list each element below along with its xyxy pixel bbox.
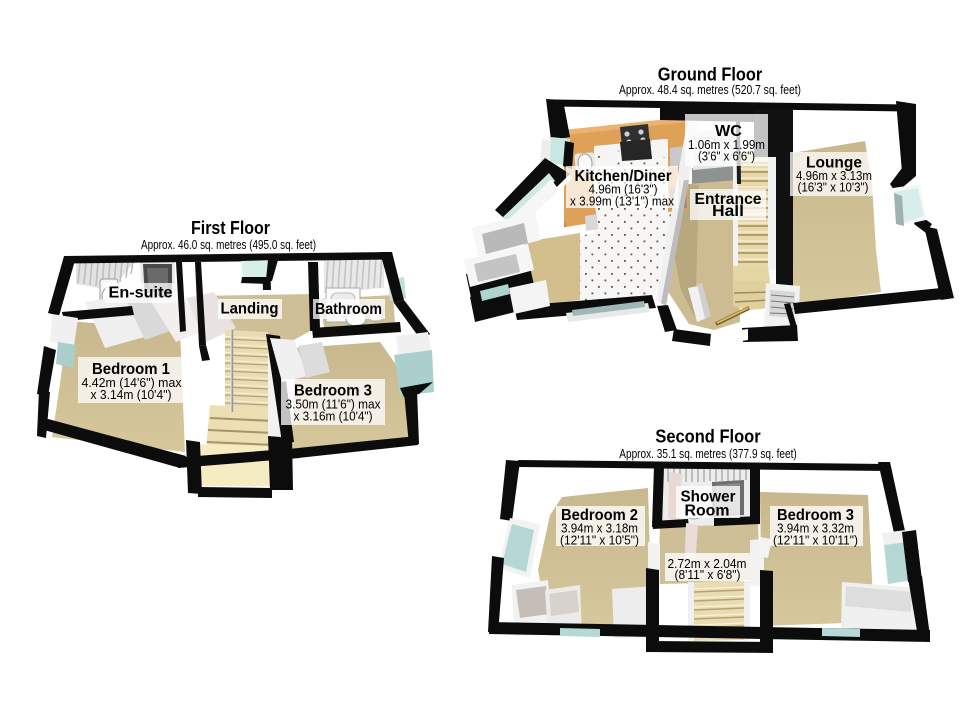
svg-text:x 3.14m (10'4"): x 3.14m (10'4") <box>91 388 172 402</box>
svg-text:First Floor: First Floor <box>191 218 270 238</box>
svg-text:Bathroom: Bathroom <box>315 301 382 318</box>
svg-text:x 3.16m (10'4"): x 3.16m (10'4") <box>294 410 373 424</box>
svg-text:(12'11" x 10'5"): (12'11" x 10'5") <box>560 533 639 547</box>
svg-text:(8'11" x 6'8"): (8'11" x 6'8") <box>675 567 741 582</box>
svg-text:(16'3" x 10'3"): (16'3" x 10'3") <box>798 181 869 195</box>
svg-text:Room: Room <box>685 503 730 520</box>
svg-text:Approx. 48.4 sq. metres (520.7: Approx. 48.4 sq. metres (520.7 sq. feet) <box>619 82 801 97</box>
svg-text:Second Floor: Second Floor <box>655 426 760 446</box>
svg-text:x 3.99m (13'1") max: x 3.99m (13'1") max <box>570 194 675 208</box>
svg-text:Approx. 46.0 sq. metres (495.0: Approx. 46.0 sq. metres (495.0 sq. feet) <box>141 237 316 252</box>
svg-text:(12'11" x 10'11"): (12'11" x 10'11") <box>773 533 858 547</box>
svg-text:(3'6" x 6'6"): (3'6" x 6'6") <box>698 150 755 164</box>
svg-text:Hall: Hall <box>712 203 744 220</box>
svg-text:Landing: Landing <box>221 301 279 318</box>
svg-text:Approx. 35.1 sq. metres (377.9: Approx. 35.1 sq. metres (377.9 sq. feet) <box>619 446 797 461</box>
svg-text:En-suite: En-suite <box>109 285 173 302</box>
